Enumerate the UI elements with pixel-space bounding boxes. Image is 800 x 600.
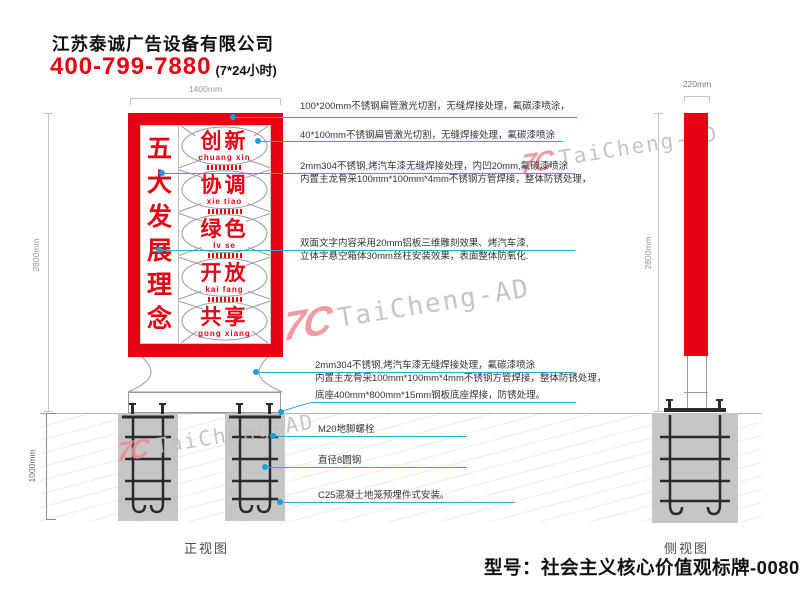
side-char: 念 bbox=[147, 307, 172, 332]
leader-dot bbox=[270, 433, 276, 439]
front-view-label: 正视图 bbox=[184, 538, 229, 557]
anchor-bolt bbox=[161, 403, 164, 414]
value-word: 共享 gong xiang bbox=[198, 307, 251, 338]
contact-row: 400-799-7880 (7*24小时) bbox=[50, 53, 277, 81]
word-cn: 共享 bbox=[200, 307, 248, 328]
leader-dot bbox=[277, 499, 283, 505]
word-cn: 开放 bbox=[201, 263, 249, 284]
word-cn: 协调 bbox=[201, 175, 249, 196]
leader-dot bbox=[230, 114, 236, 120]
word-pinyin: lv se bbox=[213, 241, 236, 250]
dim-height-side: 2800mm bbox=[642, 223, 654, 283]
leader-line bbox=[233, 117, 577, 118]
anchor-bolt bbox=[718, 399, 721, 410]
foundation-block-left bbox=[118, 413, 178, 521]
rebar-cage bbox=[118, 413, 178, 521]
leader-dot bbox=[253, 369, 259, 375]
leader-line bbox=[258, 141, 563, 142]
base-plate-front bbox=[128, 392, 281, 413]
side-char: 发 bbox=[147, 205, 172, 230]
dot-separator bbox=[208, 209, 242, 214]
watermark-text: TaiCheng-AD bbox=[336, 276, 532, 332]
dim-width-side: 220mm bbox=[672, 79, 722, 89]
dot-separator bbox=[207, 165, 241, 170]
leader-line bbox=[256, 372, 575, 373]
leader-line bbox=[273, 436, 467, 437]
dim-width-front: 1400mm bbox=[130, 84, 281, 94]
leader-line bbox=[310, 402, 576, 403]
word-pinyin: gong xiang bbox=[198, 329, 251, 338]
leader-line bbox=[281, 402, 311, 412]
leader-dot bbox=[255, 138, 261, 144]
side-char: 五 bbox=[147, 137, 172, 162]
sign-column-side bbox=[684, 113, 708, 356]
signboard-front: 五 大 发 展 理 念 bbox=[128, 113, 283, 357]
dot-separator bbox=[208, 297, 242, 302]
word-pinyin: chuang xin bbox=[198, 153, 250, 162]
base-plate-side bbox=[664, 408, 726, 412]
word-pinyin: kai fang bbox=[205, 285, 243, 294]
post-flange-line bbox=[684, 392, 708, 393]
anchor-bolt bbox=[131, 403, 134, 414]
leader-dot bbox=[156, 247, 162, 253]
rebar-cage bbox=[652, 413, 738, 523]
word-cn: 绿色 bbox=[201, 219, 249, 240]
phone-number: 400-799-7880 bbox=[50, 53, 211, 81]
model-number: 型号：社会主义核心价值观标牌-0080 bbox=[484, 554, 800, 580]
leader-line bbox=[280, 502, 515, 503]
leader-line bbox=[265, 467, 467, 468]
annotation-note: M20地脚螺栓 bbox=[318, 423, 374, 436]
annotation-note: C25混凝土地笼预埋件式安装。 bbox=[318, 489, 449, 502]
sign-panel: 五 大 发 展 理 念 bbox=[140, 125, 271, 344]
leader-dot bbox=[278, 409, 284, 415]
dot-separator bbox=[208, 253, 242, 258]
dim-depth-front: 1000mm bbox=[26, 438, 38, 494]
annotation-note: 底座400mm*800mm*15mm钢板底座焊接，防锈处理。 bbox=[315, 389, 545, 402]
sign-side-title: 五 大 发 展 理 念 bbox=[141, 126, 179, 343]
dim-height-front: 2800mm bbox=[30, 225, 42, 285]
value-word: 开放 kai fang bbox=[201, 263, 249, 302]
side-char: 理 bbox=[147, 273, 172, 298]
foundation-block-side bbox=[652, 413, 738, 523]
technical-drawing-page: 江苏泰诚广告设备有限公司 400-799-7880 (7*24小时) 7C Ta… bbox=[0, 0, 800, 600]
taicheng-logo-icon: 7C bbox=[282, 300, 332, 348]
annotation-note: 100*200mm不锈钢扁管激光切割，无缝焊接处理，氟碳漆喷涂， bbox=[300, 100, 570, 113]
anchor-bolt bbox=[268, 403, 271, 414]
value-word: 创新 chuang xin bbox=[198, 131, 250, 170]
leader-line bbox=[162, 173, 575, 174]
leader-dot bbox=[159, 170, 165, 176]
watermark-center: 7C TaiCheng-AD bbox=[280, 269, 533, 348]
pedestal-neck bbox=[126, 356, 284, 393]
word-pinyin: xie tiao bbox=[207, 197, 243, 206]
service-hours: (7*24小时) bbox=[215, 60, 276, 81]
anchor-bolt bbox=[668, 399, 671, 410]
value-word: 协调 xie tiao bbox=[201, 175, 249, 214]
post-lower-side bbox=[687, 356, 707, 408]
value-word: 绿色 lv se bbox=[201, 219, 249, 258]
word-cn: 创新 bbox=[200, 131, 248, 152]
leader-line bbox=[159, 250, 575, 251]
leader-dot bbox=[262, 464, 268, 470]
annotation-note: 直径8圆钢 bbox=[318, 454, 361, 467]
anchor-bolt bbox=[238, 403, 241, 414]
sign-words-panel: 创新 chuang xin 协调 xie tiao 绿色 lv se 开放 ka… bbox=[179, 126, 270, 343]
